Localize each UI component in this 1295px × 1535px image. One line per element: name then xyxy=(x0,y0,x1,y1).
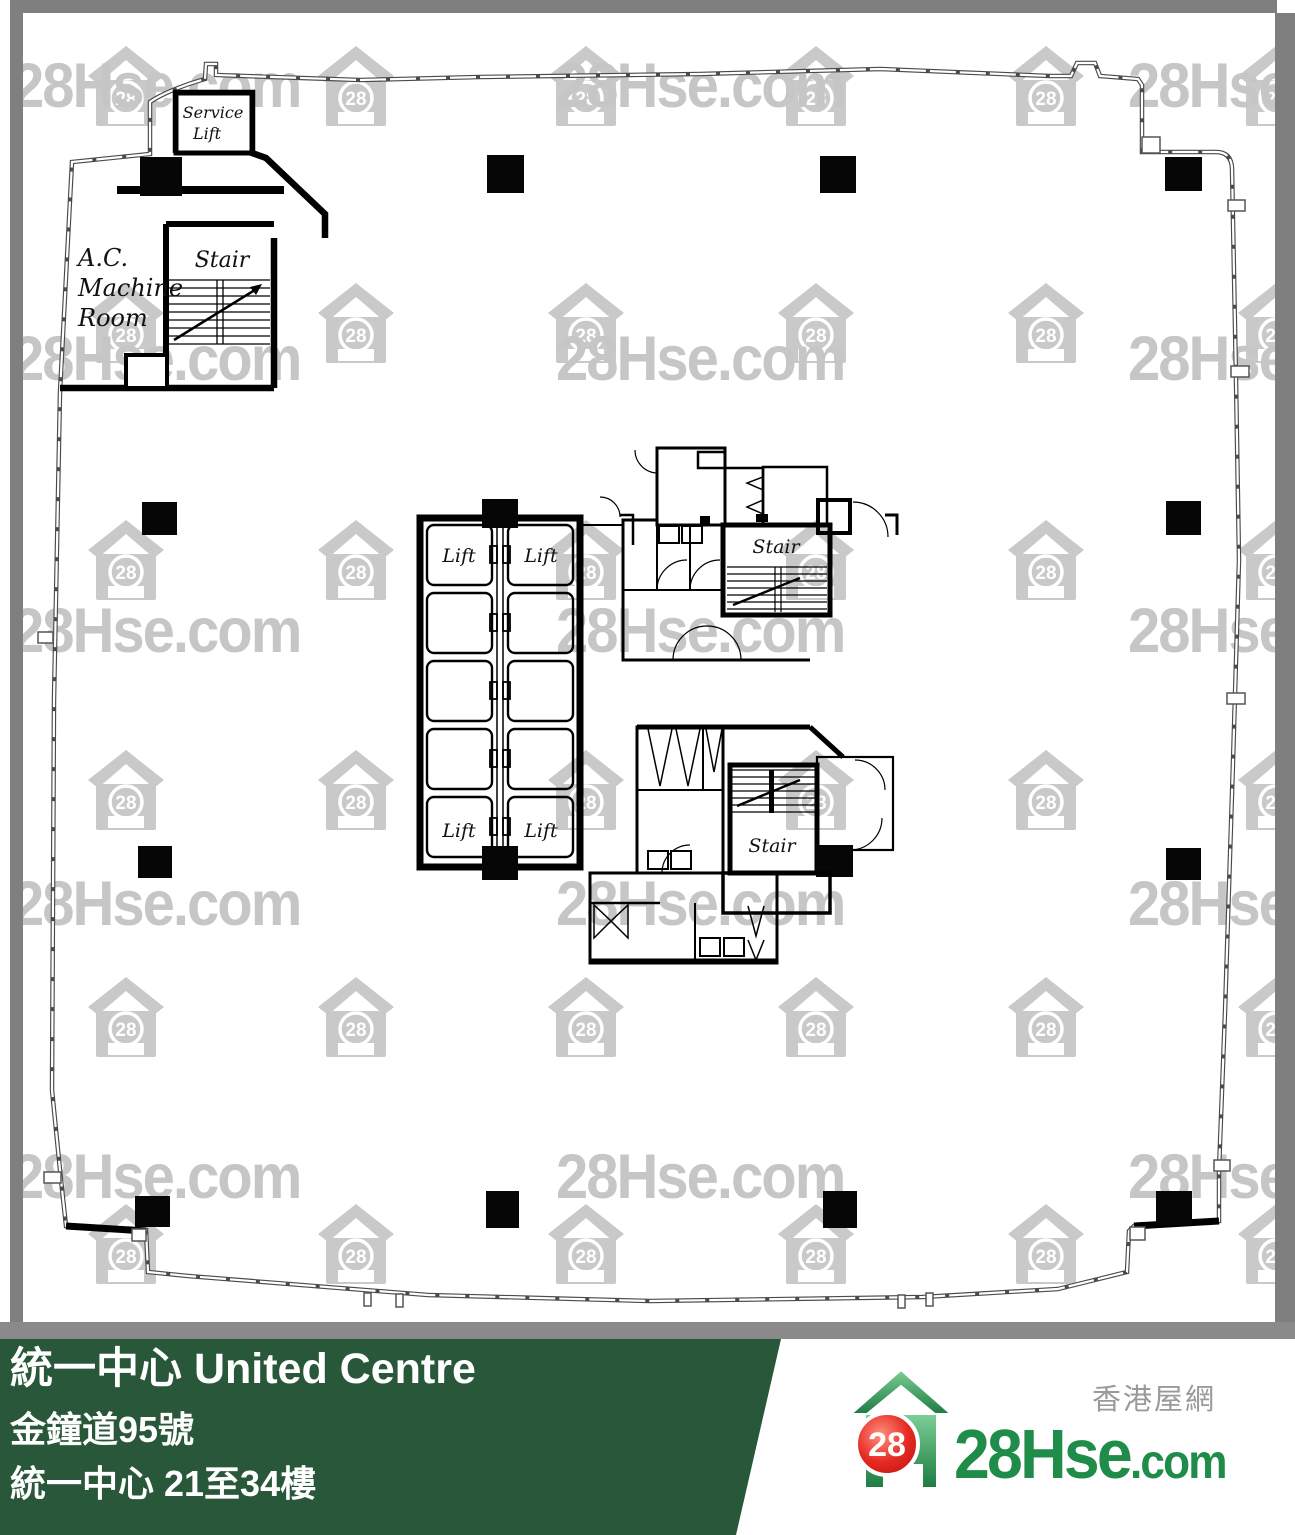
floorplan-drawing: Service Lift A.C. Machine Room Stair Sta… xyxy=(0,0,1295,1322)
service-lift-label-2: Lift xyxy=(192,124,222,143)
lift-label-top-left: Lift xyxy=(441,545,476,567)
ac-room-label-2: Machine xyxy=(77,274,183,302)
stair-label-top-left: Stair xyxy=(195,248,251,273)
lift-label-bottom-left: Lift xyxy=(441,820,476,842)
lift-label-bottom-right: Lift xyxy=(523,820,558,842)
footer-bar: 統一中心 United Centre 金鐘道95號 統一中心 21至34樓 香港… xyxy=(0,1322,1295,1535)
logo-wordmark-name: 28Hse xyxy=(954,1415,1130,1493)
ac-room-label-3: Room xyxy=(77,304,148,332)
service-lift-shaft xyxy=(176,93,252,153)
stair-label-upper: Stair xyxy=(752,536,801,558)
building-address: 金鐘道95號 xyxy=(10,1410,194,1450)
structural-columns xyxy=(135,155,1202,1228)
lift-label-top-right: Lift xyxy=(523,545,558,567)
building-title: 統一中心 United Centre xyxy=(10,1346,476,1393)
ac-room-label-1: A.C. xyxy=(76,244,128,272)
room-labels: Service Lift A.C. Machine Room Stair Sta… xyxy=(76,103,801,857)
border-frame-top xyxy=(10,0,1277,13)
logo-house-icon: 28 xyxy=(851,1370,951,1492)
logo-badge-text: 28 xyxy=(868,1426,906,1464)
floorplan-page: 28 28 28 28 28 28 28 xyxy=(0,0,1295,1535)
footer-gray-strip xyxy=(0,1322,1295,1339)
building-floors: 統一中心 21至34樓 xyxy=(10,1464,316,1504)
logo-wordmark: 28Hse.com xyxy=(954,1414,1226,1494)
site-name: 香港屋網 xyxy=(1092,1376,1216,1418)
border-frame-left xyxy=(10,0,23,1322)
upper-core-block xyxy=(580,448,897,660)
stair-treads-upper xyxy=(727,567,827,612)
border-frame-right xyxy=(1275,13,1295,1322)
logo-wordmark-tld: .com xyxy=(1130,1436,1226,1489)
lift-cells xyxy=(427,525,573,857)
lower-core-block xyxy=(590,727,893,963)
service-lift-label-1: Service xyxy=(183,103,244,122)
floorplan-area: 28 28 28 28 28 28 28 xyxy=(0,0,1295,1322)
stair-label-lower: Stair xyxy=(748,835,797,857)
